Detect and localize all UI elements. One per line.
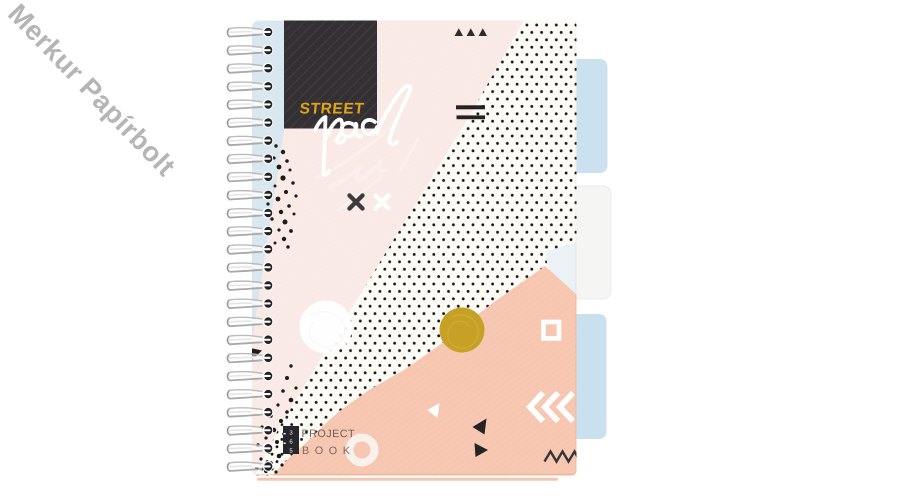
- svg-text:STREET: STREET: [299, 101, 365, 118]
- svg-text:BOOK: BOOK: [302, 445, 356, 457]
- svg-text:Merkur Papírbolt: Merkur Papírbolt: [2, 0, 182, 182]
- svg-text:PROJECT: PROJECT: [301, 428, 355, 440]
